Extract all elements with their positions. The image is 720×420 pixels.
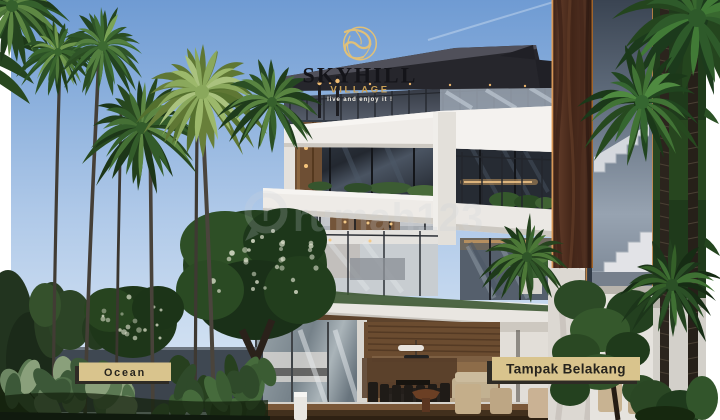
svg-text:Tampak Belakang: Tampak Belakang xyxy=(506,362,626,377)
svg-text:VILLAGE: VILLAGE xyxy=(330,85,389,96)
svg-text:rumah123: rumah123 xyxy=(293,196,484,240)
svg-text:Ocean: Ocean xyxy=(104,367,146,379)
svg-text:r: r xyxy=(262,197,272,227)
svg-text:live and enjoy it !: live and enjoy it ! xyxy=(327,97,393,103)
